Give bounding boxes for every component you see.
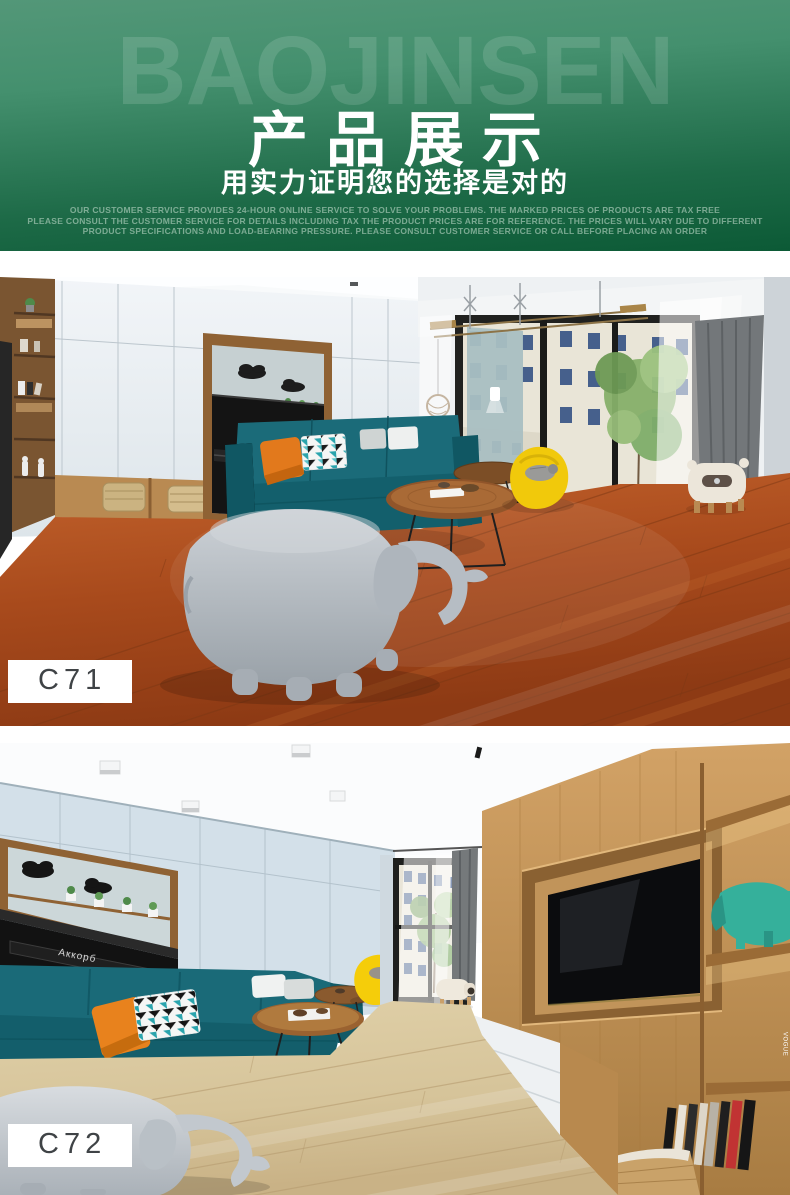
gray-curtain bbox=[452, 848, 478, 1001]
pet-stool bbox=[686, 458, 749, 515]
product-display-page: BAOJINSEN 产品展示 用实力证明您的选择是对的 OUR CUSTOMER… bbox=[0, 0, 790, 1195]
product-code-label: C72 bbox=[8, 1124, 132, 1167]
wall-sconce bbox=[490, 387, 500, 401]
bookshelf bbox=[0, 277, 55, 559]
book-spine-title: VOGUE bbox=[782, 1032, 788, 1056]
white-pillow bbox=[251, 974, 286, 998]
product-photo-c72: Аккорб bbox=[0, 743, 790, 1195]
service-note-line: OUR CUSTOMER SERVICE PROVIDES 24-HOUR ON… bbox=[0, 205, 790, 216]
gray-curtain bbox=[695, 315, 764, 485]
page-subtitle: 用实力证明您的选择是对的 bbox=[0, 161, 790, 200]
brand-watermark: BAOJINSEN bbox=[0, 22, 790, 119]
spacer bbox=[0, 251, 790, 277]
service-note-line: PLEASE CONSULT THE CUSTOMER SERVICE FOR … bbox=[0, 216, 790, 227]
service-note-line: PRODUCT SPECIFICATIONS AND LOAD-BEARING … bbox=[0, 226, 790, 237]
spacer bbox=[0, 726, 790, 743]
gray-pillow bbox=[359, 428, 386, 449]
hero-banner: BAOJINSEN 产品展示 用实力证明您的选择是对的 OUR CUSTOMER… bbox=[0, 0, 790, 251]
gray-pillow bbox=[284, 978, 315, 999]
white-pillow bbox=[387, 426, 418, 450]
living-room-red-floor-render: Аккорб bbox=[0, 277, 790, 726]
chalkboard bbox=[0, 341, 12, 559]
patterned-pillow bbox=[133, 989, 201, 1041]
product-photo-c71: Аккорб bbox=[0, 277, 790, 726]
product-code-label: C71 bbox=[8, 660, 132, 703]
patterned-pillow bbox=[301, 434, 347, 471]
service-notes: OUR CUSTOMER SERVICE PROVIDES 24-HOUR ON… bbox=[0, 205, 790, 237]
